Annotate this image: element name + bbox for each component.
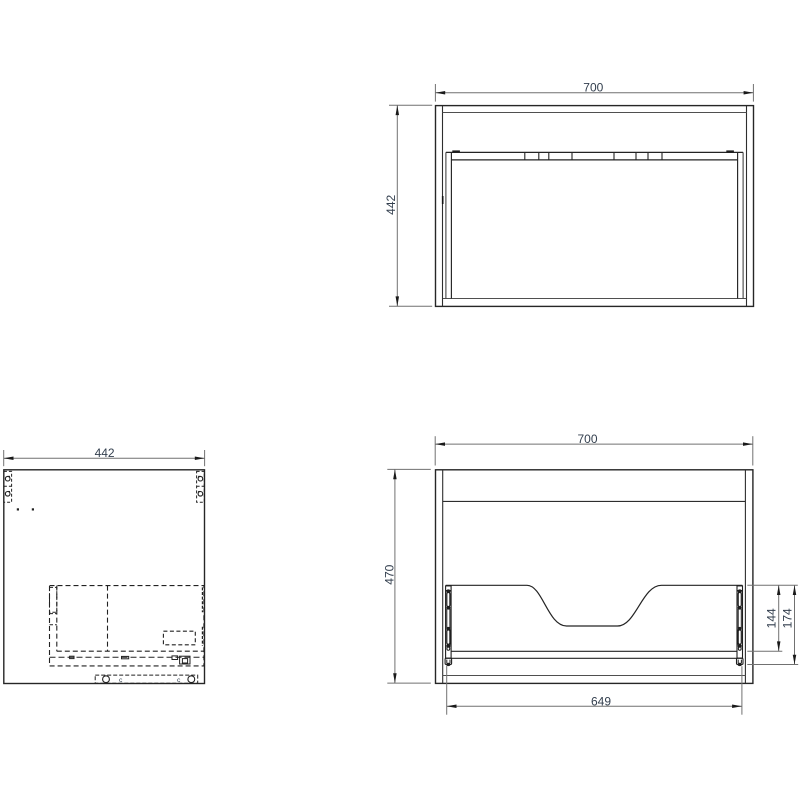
svg-text:470: 470 [382,564,396,584]
svg-text:700: 700 [583,80,603,94]
svg-text:442: 442 [384,194,398,214]
svg-text:144: 144 [765,608,779,628]
svg-text:649: 649 [591,695,611,709]
svg-text:174: 174 [780,608,794,628]
svg-text:c: c [177,677,181,684]
svg-text:700: 700 [577,432,597,446]
svg-text:442: 442 [95,446,115,460]
svg-text:c: c [119,677,123,684]
